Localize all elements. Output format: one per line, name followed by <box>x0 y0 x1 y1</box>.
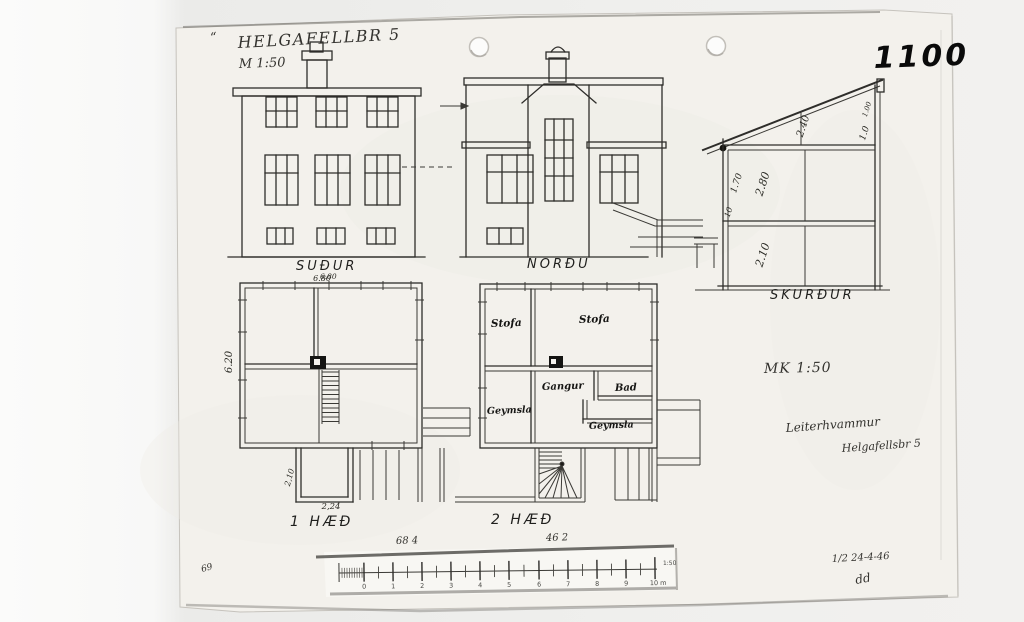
scale-tick-4: 4 <box>478 581 482 589</box>
room-stofa-2: Stofa <box>579 313 610 326</box>
plan2-label: 2 HÆÐ <box>491 512 554 528</box>
section-label: SKURÐUR <box>770 288 855 303</box>
drawing-canvas: 1100 “ HELGAFELLBR 5 M 1:50 <box>0 0 1024 622</box>
initials-note: dd <box>854 570 872 587</box>
scale-tick-3: 3 <box>449 582 453 590</box>
pencil-note-right: 46 2 <box>545 532 569 544</box>
scale-note: MK 1:50 <box>763 360 832 377</box>
scale-tick-1: 1 <box>391 582 395 590</box>
north-elevation-label: NORÐU <box>527 257 591 272</box>
pencil-note-left: 68 4 <box>396 535 419 547</box>
room-geymsla-1: Geymsla <box>487 404 532 417</box>
scale-tick-6: 6 <box>537 580 541 588</box>
porch-width-dim: 2,24 <box>321 502 341 512</box>
archive-stamp-number: 1100 <box>873 38 970 76</box>
scale-bar: 0 1 2 3 4 5 6 7 8 9 10 m 1:50 <box>316 545 677 597</box>
plan1-label: 1 HÆÐ <box>290 514 353 530</box>
room-gangur: Gangur <box>542 381 585 393</box>
scale-ratio: 1:50 <box>663 560 677 567</box>
plan1-width-dim: 6.80 <box>313 274 331 283</box>
scanned-drawing-sheet: 1100 “ HELGAFELLBR 5 M 1:50 <box>0 0 1024 622</box>
scale-tick-2: 2 <box>420 582 424 590</box>
scale-tick-8: 8 <box>595 580 599 588</box>
scale-tick-5: 5 <box>507 581 511 589</box>
room-bad: Bad <box>614 382 637 394</box>
room-stofa-1: Stofa <box>491 317 522 330</box>
scale-tick-9: 9 <box>624 579 628 587</box>
scale-tick-7: 7 <box>566 580 570 588</box>
room-geymsla-2: Geymsla <box>589 419 634 432</box>
sheet-scale: M 1:50 <box>238 55 286 72</box>
plan1-height-dim: 6.20 <box>224 350 235 373</box>
scale-tick-0: 0 <box>362 583 366 591</box>
scale-tick-10: 10 m <box>650 579 667 587</box>
